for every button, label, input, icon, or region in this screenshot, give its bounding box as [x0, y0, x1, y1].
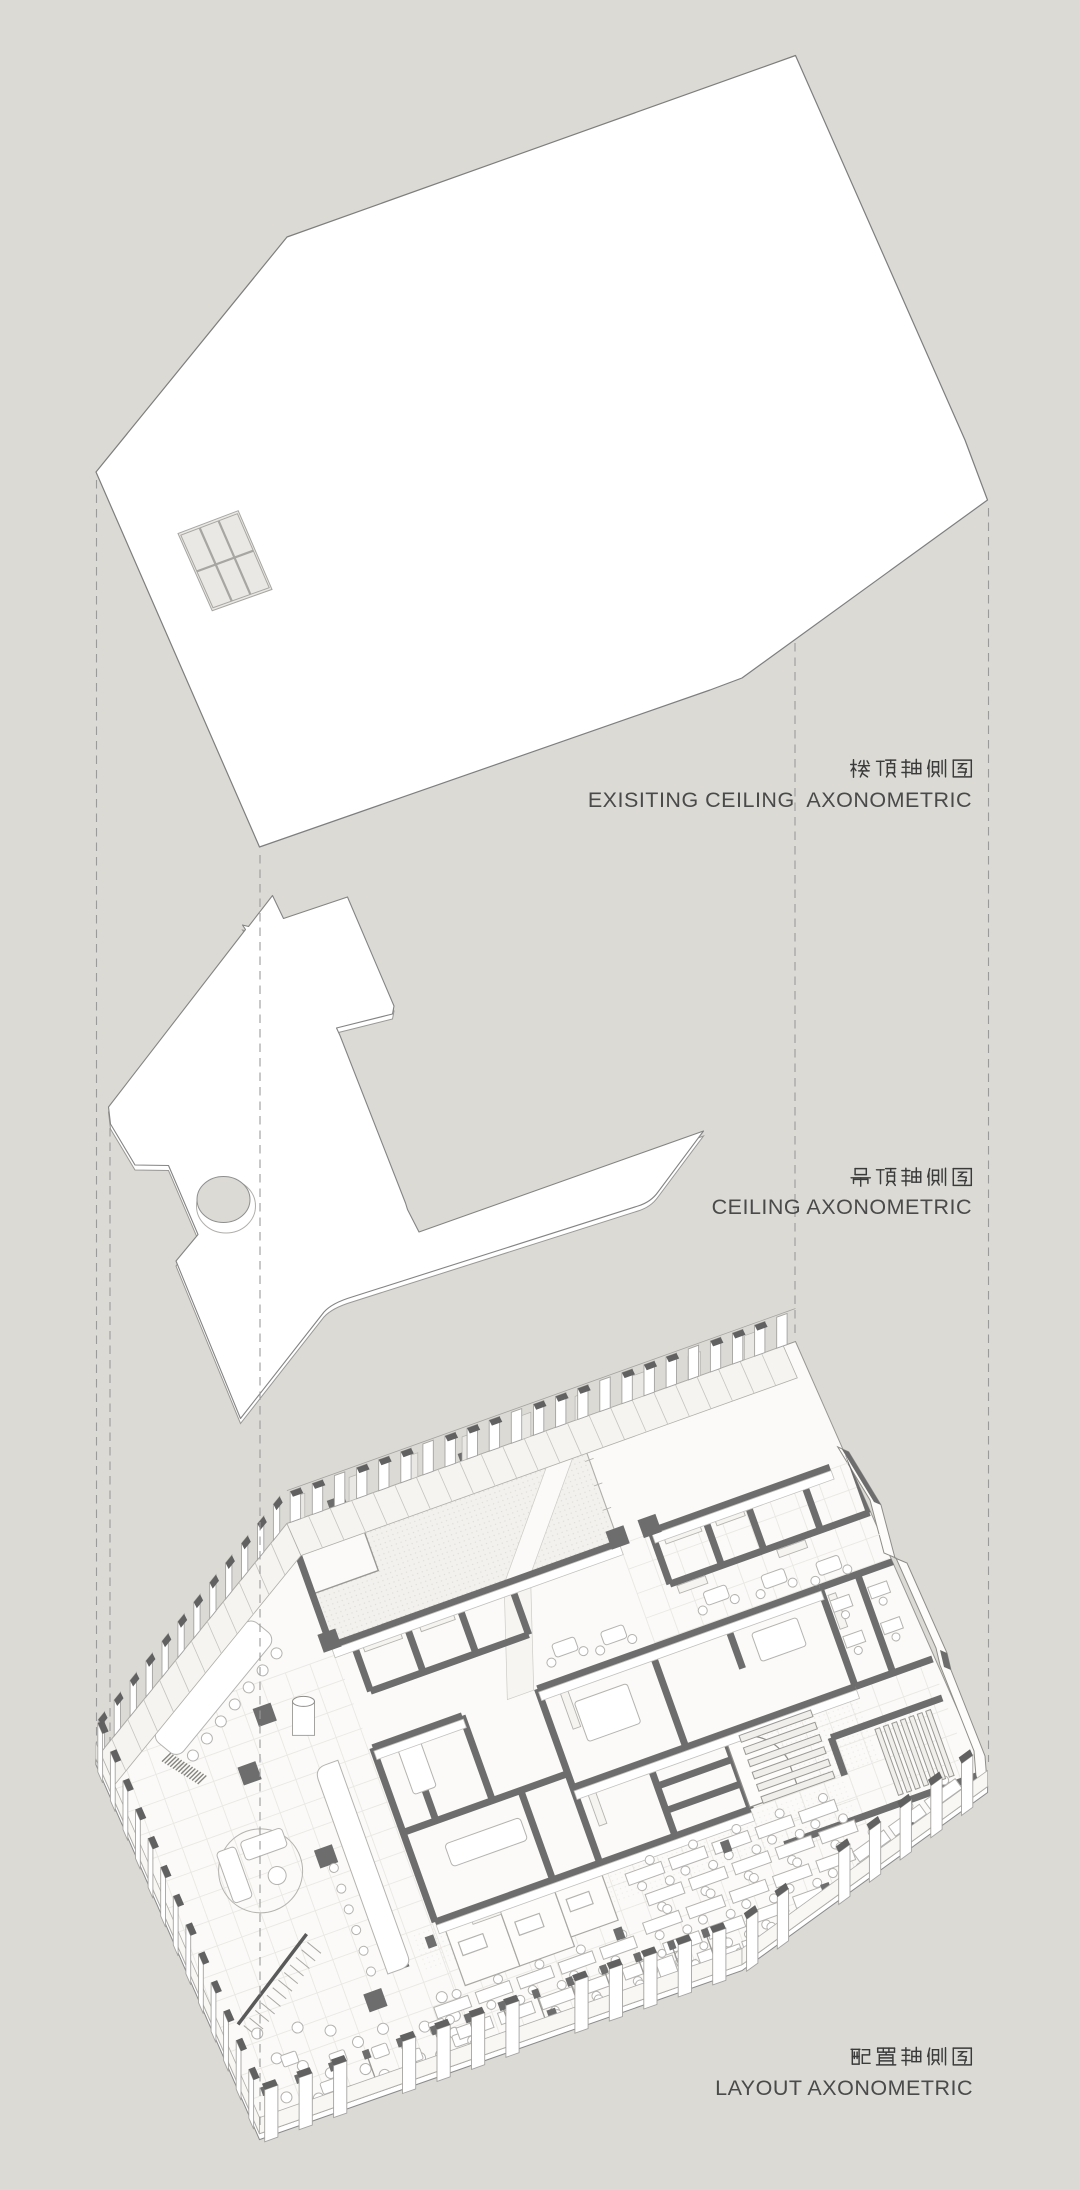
svg-text:EXISITING CEILING AXONOMETRIC: EXISITING CEILING AXONOMETRIC	[588, 788, 972, 812]
svg-text:CEILING AXONOMETRIC: CEILING AXONOMETRIC	[712, 1195, 972, 1219]
svg-text:LAYOUT AXONOMETRIC: LAYOUT AXONOMETRIC	[715, 2076, 973, 2100]
